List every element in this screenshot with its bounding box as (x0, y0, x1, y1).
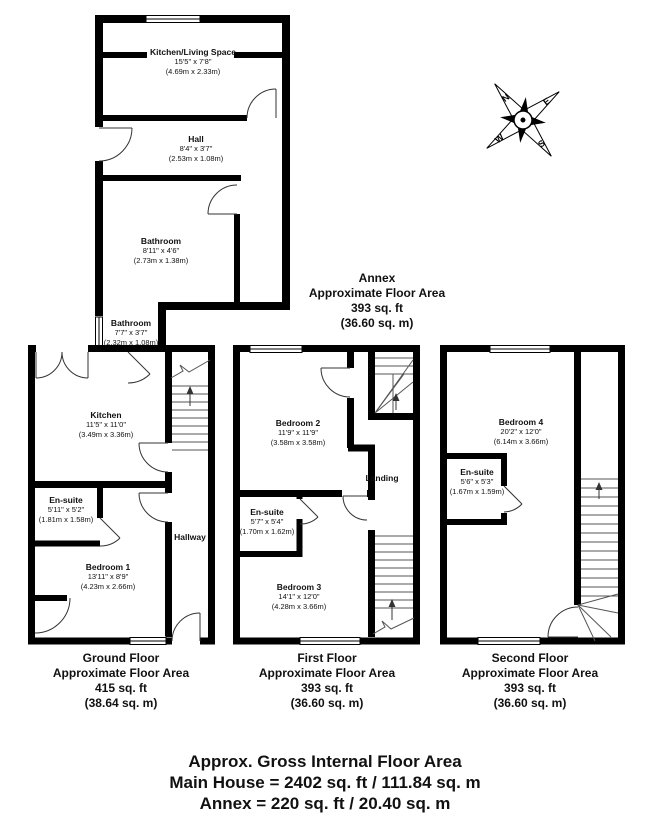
summary-main-house: Main House = 2402 sq. ft / 111.84 sq. m (169, 772, 480, 793)
first-floor-plan (237, 344, 417, 646)
link-door (128, 352, 150, 383)
room-label-first-bedroom2: Bedroom 2 11'9" x 11'9" (3.58m x 3.58m) (271, 418, 326, 447)
first-bedroom3-door (343, 496, 367, 520)
second-window-bottom (478, 637, 540, 646)
room-label-second-bedroom4: Bedroom 4 20'2" x 12'0" (6.14m x 3.66m) (494, 417, 549, 446)
room-label-ground-ensuite: En-suite 5'11" x 5'2" (1.81m x 1.58m) (39, 495, 94, 524)
annex-caption: Annex Approximate Floor Area 393 sq. ft … (309, 271, 445, 331)
room-label-first-ensuite: En-suite 5'7" x 5'4" (1.70m x 1.62m) (240, 507, 295, 536)
ground-window-bottom (130, 637, 166, 646)
ground-bedroom1-door (35, 598, 70, 633)
ground-kitchen-door (139, 443, 168, 472)
gross-area-summary: Approx. Gross Internal Floor Area Main H… (169, 751, 480, 814)
room-label-link-bathroom: Bathroom 7'7" x 3'7" (2.32m x 1.08m) (104, 318, 159, 347)
ground-double-doors (36, 344, 88, 379)
summary-annex: Annex = 220 sq. ft / 20.40 sq. m (169, 793, 480, 814)
annex-bathroom-door (208, 185, 237, 214)
compass-rose: N E S W (458, 55, 587, 184)
room-label-ground-hallway: Hallway (174, 532, 206, 542)
second-stairs (578, 479, 618, 641)
ground-corridor-door (139, 493, 168, 522)
first-window-top (250, 344, 302, 354)
ground-stairs (171, 360, 210, 450)
room-label-annex-kitchen-living: Kitchen/Living Space 15'5" x 7'8" (4.69m… (150, 47, 236, 76)
annex-window-top (146, 14, 200, 24)
first-upper-stairs (375, 358, 413, 413)
room-label-annex-bathroom: Bathroom 8'11" x 4'6" (2.73m x 1.38m) (134, 236, 189, 265)
ground-ensuite-door (100, 518, 120, 546)
second-window-top (490, 344, 550, 354)
room-label-ground-kitchen: Kitchen 11'5" x 11'0" (3.49m x 3.36m) (79, 410, 134, 439)
first-floor-caption: First Floor Approximate Floor Area 393 s… (259, 651, 395, 711)
room-label-first-landing: Landing (365, 473, 398, 483)
annex-hall-door (94, 127, 132, 161)
room-label-first-bedroom3: Bedroom 3 14'1" x 12'0" (4.28m x 3.66m) (272, 582, 327, 611)
room-label-ground-bedroom1: Bedroom 1 13'11" x 8'9" (4.23m x 2.66m) (81, 562, 136, 591)
summary-title: Approx. Gross Internal Floor Area (169, 751, 480, 772)
ground-front-door (172, 613, 200, 646)
ground-floor-caption: Ground Floor Approximate Floor Area 415 … (53, 651, 189, 711)
first-window-bottom (300, 637, 360, 646)
second-stairs-door (548, 607, 578, 637)
first-lower-stairs (373, 536, 414, 634)
room-label-annex-hall: Hall 8'4" x 3'7" (2.53m x 1.08m) (169, 134, 224, 163)
first-bedroom2-door (321, 368, 350, 397)
second-ensuite-door (504, 486, 522, 512)
annex-kitchen-door (247, 89, 276, 118)
second-floor-caption: Second Floor Approximate Floor Area 393 … (462, 651, 598, 711)
floorplan-page: N E S W Kitchen/Living Space 15'5" x 7'8… (0, 0, 650, 821)
room-label-second-ensuite: En-suite 5'6" x 5'3" (1.67m x 1.59m) (450, 467, 505, 496)
link-window-left (94, 316, 104, 349)
